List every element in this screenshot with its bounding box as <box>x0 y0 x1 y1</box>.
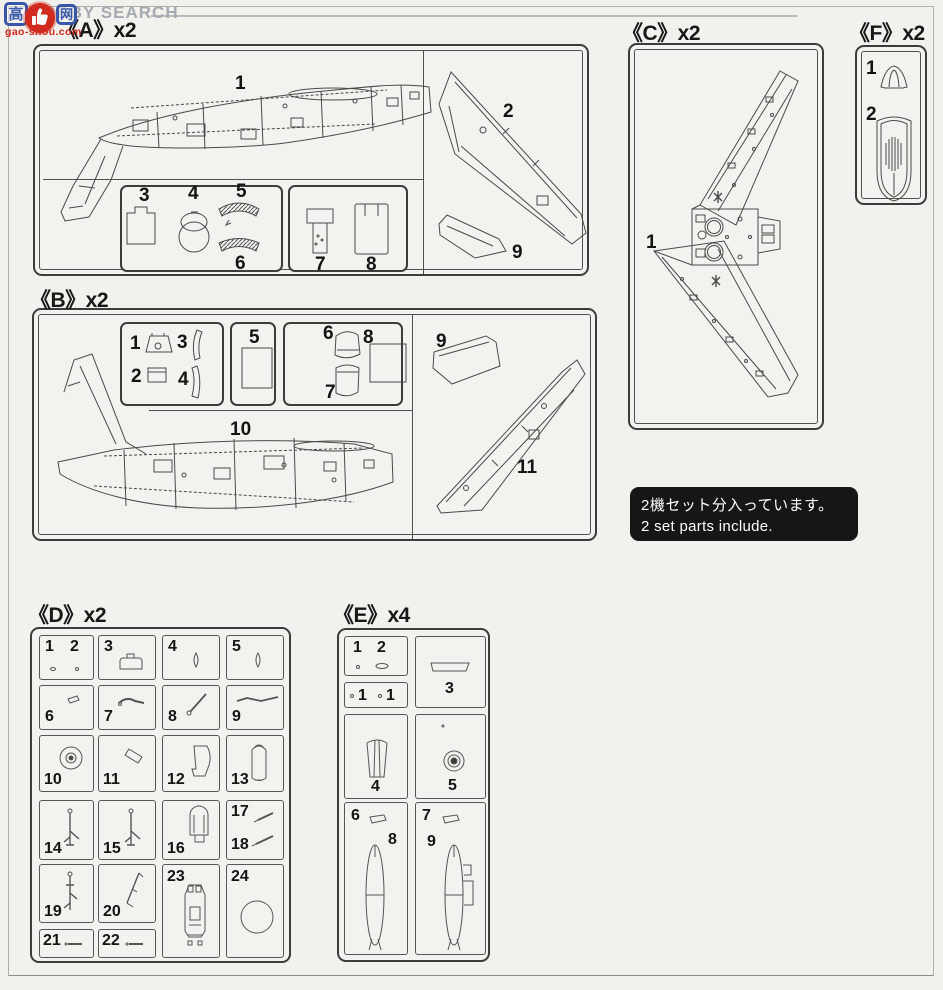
part-cell-d21: 21 <box>39 929 94 958</box>
part-cell-d3: 3 <box>98 635 156 680</box>
part-cell-d22: 22 <box>98 929 156 958</box>
part-cell-d13: 13 <box>226 735 284 792</box>
part-cell-d9: 9 <box>226 685 284 730</box>
small-parts-drawing <box>345 683 409 709</box>
part-cell-d10: 10 <box>39 735 94 792</box>
sprue-box-d: 1 2 3 4 5 6 7 8 9 10 11 12 <box>30 627 291 963</box>
part-number: 6 <box>323 324 334 343</box>
part-number: 6 <box>45 709 54 725</box>
sprue-c-wing-drawing <box>630 45 826 432</box>
part-number: 3 <box>104 639 113 655</box>
part-cell-d14: 14 <box>39 800 94 860</box>
part-number: 21 <box>43 933 61 949</box>
part-cell-d16: 16 <box>162 800 220 860</box>
sprue-b-label: 《B》x2 <box>30 284 108 314</box>
two-set-note: 2機セット分入っています。 2 set parts include. <box>630 487 858 541</box>
drop-tank-drawing <box>345 803 409 956</box>
sprue-d-label: 《D》x2 <box>28 599 106 629</box>
part-number: 4 <box>371 779 380 795</box>
part-number: 11 <box>517 458 537 477</box>
part-number: 1 <box>646 233 657 252</box>
part-number: 2 <box>503 102 514 121</box>
part-cell-d11: 11 <box>98 735 156 792</box>
part-cell-d6: 6 <box>39 685 94 730</box>
part-number: 6 <box>235 254 246 273</box>
part-number: 12 <box>167 772 185 788</box>
part-number: 23 <box>167 869 185 885</box>
part-cell-e3: 3 <box>415 636 486 708</box>
part-cell-e7-e9: 7 9 <box>415 802 486 955</box>
part-number: 1 <box>358 688 367 704</box>
part-number: 18 <box>231 837 249 853</box>
part-number: 5 <box>448 778 457 794</box>
part-cell-d15: 15 <box>98 800 156 860</box>
small-parts-drawing <box>416 637 487 709</box>
part-number: 2 <box>377 640 386 656</box>
part-cell-d5: 5 <box>226 635 284 680</box>
part-cell-d20: 20 <box>98 864 156 923</box>
part-number: 3 <box>445 681 454 697</box>
part-number: 5 <box>236 182 247 201</box>
part-number: 8 <box>363 328 374 347</box>
note-japanese-text: 2機セット分入っています。 <box>641 494 858 515</box>
hobbysearch-watermark-rule <box>151 15 797 17</box>
sprue-box-a: 1 2 3 4 5 6 7 8 9 <box>33 44 589 276</box>
part-number: 2 <box>131 367 142 386</box>
sprue-box-f: 1 2 <box>855 45 927 205</box>
part-number: 10 <box>44 772 62 788</box>
part-cell-d1-d2: 1 2 <box>39 635 94 680</box>
part-number: 10 <box>230 420 251 439</box>
part-cell-d7: 7 <box>98 685 156 730</box>
sprue-box-e: 1 2 3 1 1 4 5 6 8 7 9 <box>337 628 490 962</box>
part-number: 6 <box>351 808 360 824</box>
part-number: 9 <box>436 332 447 351</box>
part-number: 7 <box>104 709 113 725</box>
part-number: 3 <box>177 333 188 352</box>
drop-tank-pylon-drawing <box>416 803 487 956</box>
part-number: 19 <box>44 904 62 920</box>
part-cell-d4: 4 <box>162 635 220 680</box>
part-number: 24 <box>231 869 249 885</box>
sprue-box-c: 1 <box>628 43 824 430</box>
part-number: 7 <box>315 255 326 274</box>
part-number: 9 <box>427 834 436 850</box>
part-number: 7 <box>422 808 431 824</box>
part-number: 1 <box>866 59 877 78</box>
part-number: 4 <box>178 370 189 389</box>
part-cell-d17-d18: 17 18 <box>226 800 284 860</box>
part-cell-e4: 4 <box>344 714 408 799</box>
part-number: 17 <box>231 804 249 820</box>
part-number: 2 <box>70 639 79 655</box>
part-cell-d24: 24 <box>226 864 284 958</box>
sprue-a-parts-drawing <box>35 46 591 278</box>
part-number: 1 <box>130 334 141 353</box>
part-number: 1 <box>235 74 246 93</box>
part-number: 2 <box>866 105 877 124</box>
sprue-b-parts-drawing <box>34 310 599 543</box>
part-number: 1 <box>353 640 362 656</box>
part-cell-e5: 5 <box>415 714 486 799</box>
part-number: 8 <box>168 709 177 725</box>
part-cell-d19: 19 <box>39 864 94 923</box>
part-number: 5 <box>232 639 241 655</box>
part-number: 3 <box>139 186 150 205</box>
part-number: 8 <box>388 832 397 848</box>
part-number: 11 <box>103 772 120 788</box>
sprue-f-label: 《F》x2 <box>849 17 925 47</box>
part-number: 7 <box>325 383 336 402</box>
part-number: 1 <box>386 688 395 704</box>
part-cell-e1-pair: 1 1 <box>344 682 408 708</box>
watermark-domain-text: gao-shou.com <box>5 26 82 38</box>
part-cell-d12: 12 <box>162 735 220 792</box>
part-number: 5 <box>249 328 260 347</box>
part-number: 22 <box>102 933 120 949</box>
part-cell-d23: 23 <box>162 864 220 958</box>
part-number: 9 <box>512 243 523 262</box>
part-number: 20 <box>103 904 121 920</box>
part-number: 9 <box>232 709 241 725</box>
sprue-box-b: 1 2 3 4 5 6 7 8 9 10 11 <box>32 308 597 541</box>
watermark-logo-right-char: 网 <box>56 4 77 25</box>
part-number: 8 <box>366 255 377 274</box>
part-number: 16 <box>167 841 185 857</box>
part-cell-e6-e8: 6 8 <box>344 802 408 955</box>
sprue-c-label: 《C》x2 <box>622 17 700 47</box>
parts-map-page: { "watermark": { "brand": "HOBBY SEARCH"… <box>0 0 943 990</box>
part-number: 4 <box>168 639 177 655</box>
part-cell-e1-e2: 1 2 <box>344 636 408 676</box>
sprue-e-label: 《E》x4 <box>333 599 410 629</box>
part-number: 14 <box>44 841 62 857</box>
note-english-text: 2 set parts include. <box>641 518 858 535</box>
part-number: 15 <box>103 841 121 857</box>
part-cell-d8: 8 <box>162 685 220 730</box>
part-number: 13 <box>231 772 249 788</box>
part-number: 1 <box>45 639 54 655</box>
part-number: 4 <box>188 184 199 203</box>
